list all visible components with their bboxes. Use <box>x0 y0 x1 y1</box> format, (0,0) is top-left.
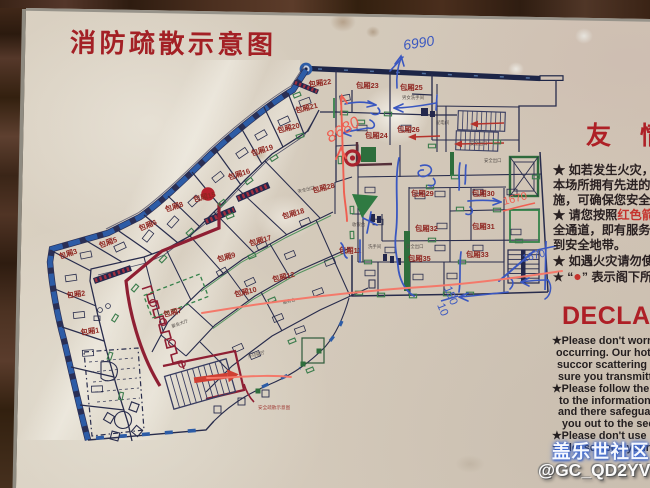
svg-text:包厢33: 包厢33 <box>466 250 489 259</box>
svg-text:包厢7: 包厢7 <box>162 306 182 319</box>
svg-text:包厢11: 包厢11 <box>339 246 361 255</box>
svg-text:包厢28: 包厢28 <box>311 181 335 195</box>
svg-text:包厢9: 包厢9 <box>216 250 236 264</box>
svg-text:配电间: 配电间 <box>436 119 449 126</box>
svg-text:包厢25: 包厢25 <box>400 83 423 92</box>
svg-text:包厢31: 包厢31 <box>472 222 495 231</box>
svg-text:包厢2: 包厢2 <box>66 288 86 300</box>
svg-text:包厢21: 包厢21 <box>294 101 318 115</box>
svg-text:6990: 6990 <box>402 32 435 53</box>
svg-text:包厢23: 包厢23 <box>356 81 379 90</box>
svg-text:包厢17: 包厢17 <box>248 233 272 248</box>
svg-text:包厢30: 包厢30 <box>472 189 495 198</box>
svg-text:包厢29: 包厢29 <box>411 189 434 198</box>
svg-text:多功能厅: 多功能厅 <box>247 349 266 360</box>
svg-text:安全出口: 安全出口 <box>484 157 502 164</box>
svg-text:包厢15: 包厢15 <box>192 190 216 204</box>
svg-text:收银台: 收银台 <box>352 221 366 228</box>
svg-text:包厢26: 包厢26 <box>397 125 420 134</box>
svg-text:包厢24: 包厢24 <box>365 131 389 140</box>
svg-text:包厢1: 包厢1 <box>80 325 100 337</box>
svg-text:男女洗手间: 男女洗手间 <box>402 94 424 101</box>
svg-text:包厢20: 包厢20 <box>276 121 300 135</box>
svg-text:安全出口: 安全出口 <box>470 140 488 147</box>
svg-text:洗手间: 洗手间 <box>368 243 381 250</box>
svg-text:包厢32: 包厢32 <box>415 224 438 233</box>
svg-text:包厢18: 包厢18 <box>281 206 305 221</box>
svg-text:包厢8: 包厢8 <box>164 200 185 214</box>
svg-text:包厢22: 包厢22 <box>308 77 332 89</box>
svg-text:安全出口: 安全出口 <box>406 243 424 250</box>
svg-text:安全疏散示意图: 安全疏散示意图 <box>258 404 291 411</box>
svg-text:包厢35: 包厢35 <box>408 254 431 263</box>
svg-text:宴会大厅: 宴会大厅 <box>170 317 189 330</box>
